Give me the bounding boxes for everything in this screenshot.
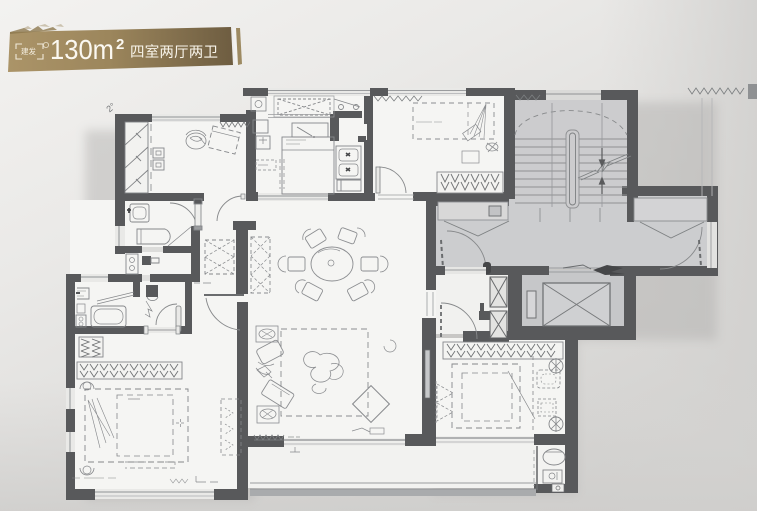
svg-text:130m: 130m <box>50 34 114 65</box>
svg-text:2: 2 <box>116 36 124 53</box>
svg-text:四室两厅两卫: 四室两厅两卫 <box>130 44 218 61</box>
svg-text:建发: 建发 <box>21 46 36 56</box>
